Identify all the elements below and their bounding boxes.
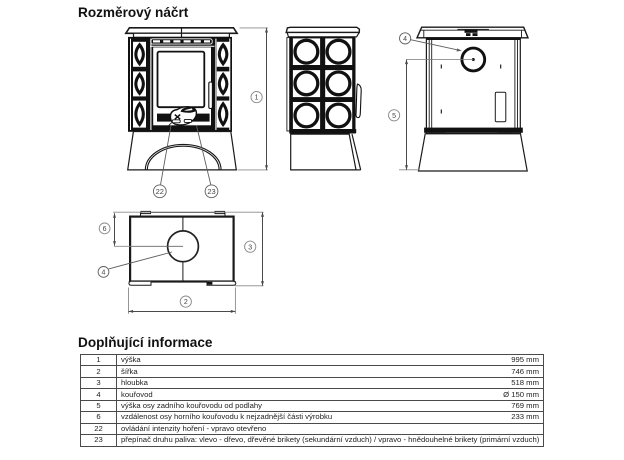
svg-text:23: 23 bbox=[207, 187, 215, 196]
svg-text:6: 6 bbox=[103, 226, 107, 233]
svg-text:3: 3 bbox=[248, 244, 252, 251]
svg-text:5: 5 bbox=[392, 113, 396, 120]
svg-text:2: 2 bbox=[184, 299, 188, 306]
svg-text:4: 4 bbox=[403, 36, 407, 43]
svg-text:22: 22 bbox=[156, 187, 164, 196]
svg-text:1: 1 bbox=[255, 95, 259, 102]
svg-text:4: 4 bbox=[102, 270, 106, 277]
